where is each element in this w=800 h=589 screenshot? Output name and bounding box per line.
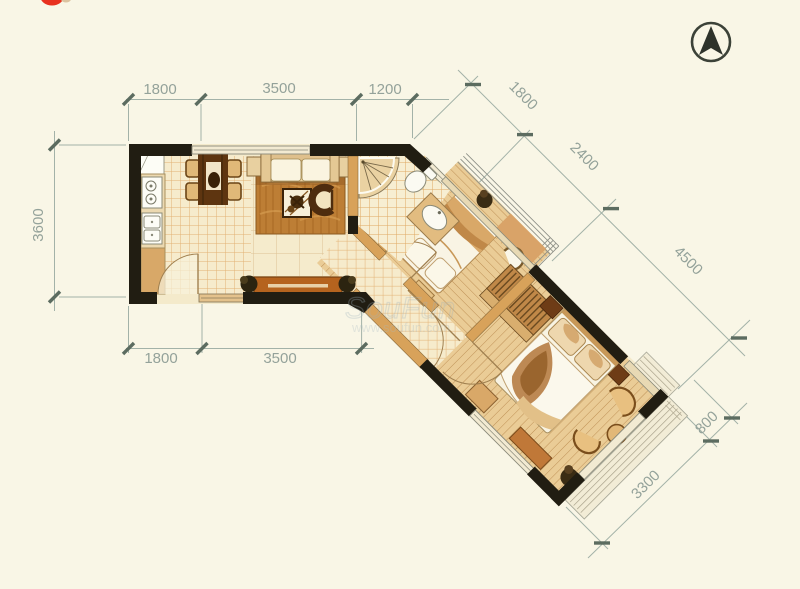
svg-text:1800: 1800 bbox=[143, 81, 176, 98]
svg-text:1800: 1800 bbox=[144, 350, 177, 367]
svg-text:www.soufun.com: www.soufun.com bbox=[351, 320, 450, 335]
svg-text:3600: 3600 bbox=[30, 208, 47, 241]
svg-text:1200: 1200 bbox=[368, 81, 401, 98]
svg-text:3500: 3500 bbox=[262, 80, 295, 97]
svg-text:3500: 3500 bbox=[263, 350, 296, 367]
